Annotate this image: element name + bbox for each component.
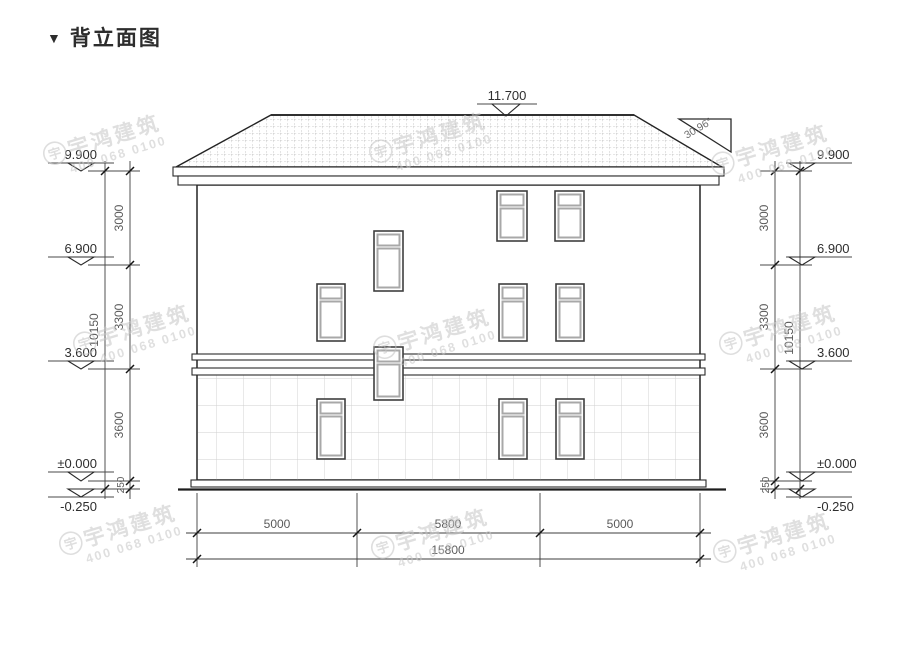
- window: [556, 399, 584, 459]
- level-label: 3.600: [817, 345, 850, 360]
- level-label: 6.900: [817, 241, 850, 256]
- eave-fascia-upper: [173, 167, 724, 176]
- dim-value: 3600: [757, 411, 771, 438]
- level-label: ±0.000: [817, 456, 857, 471]
- stair-window-upper: [374, 231, 403, 291]
- dim-value: 250: [116, 476, 127, 493]
- window: [499, 399, 527, 459]
- watermark: 宇 宇鸿建筑 400 068 0100: [709, 120, 836, 192]
- window: [317, 284, 345, 341]
- dim-value: 3000: [112, 204, 126, 231]
- ground-floor-tile-cladding: [198, 375, 699, 480]
- svg-text:宇: 宇: [717, 543, 734, 561]
- svg-text:宇: 宇: [715, 155, 732, 173]
- dim-value: 5000: [607, 517, 634, 531]
- ridge-elevation-label: 11.700: [488, 88, 527, 103]
- stair-window-lower: [374, 347, 403, 400]
- building: [173, 115, 726, 490]
- dim-value: 5000: [264, 517, 291, 531]
- dim-value: 3000: [757, 204, 771, 231]
- ridge-elevation-marker: 11.700: [477, 88, 537, 116]
- level-label: ±0.000: [57, 456, 97, 471]
- level-marker: 6.900: [48, 241, 114, 265]
- window: [317, 399, 345, 459]
- watermark-logo-icon: 宇: [47, 145, 64, 163]
- eave-fascia-lower: [178, 176, 719, 185]
- level-marker: -0.250: [48, 489, 114, 514]
- level-marker: ±0.000: [48, 456, 114, 481]
- belt-course-lower: [192, 368, 705, 375]
- watermark: 宇 宇鸿建筑 400 068 0100: [711, 508, 838, 580]
- level-marker: ±0.000: [786, 456, 857, 481]
- window: [555, 191, 584, 241]
- level-label: -0.250: [60, 499, 97, 514]
- back-elevation-drawing: 11.700 30.96°: [0, 0, 910, 670]
- plinth: [191, 480, 706, 487]
- dim-value: 250: [761, 476, 772, 493]
- window: [556, 284, 584, 341]
- watermark: 宇 宇鸿建筑 400 068 0100: [369, 504, 496, 576]
- svg-text:宇: 宇: [723, 335, 740, 353]
- drawing-sheet: ▼ 背立面图: [0, 0, 910, 670]
- svg-text:宇: 宇: [63, 535, 80, 553]
- window: [499, 284, 527, 341]
- level-label: 6.900: [64, 241, 97, 256]
- window: [497, 191, 527, 241]
- watermark: 宇 宇鸿建筑 400 068 0100: [717, 300, 844, 372]
- level-marker: 6.900: [786, 241, 852, 265]
- svg-text:宇: 宇: [375, 539, 392, 557]
- dim-value: 3600: [112, 411, 126, 438]
